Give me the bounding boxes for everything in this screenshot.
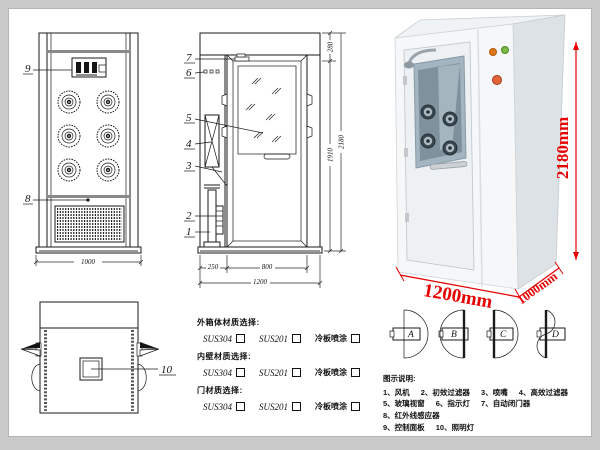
material-group-title: 外箱体材质选择: xyxy=(197,317,379,328)
svg-text:A: A xyxy=(407,330,414,340)
legend-title: 图示说明: xyxy=(383,373,591,385)
svg-text:1000: 1000 xyxy=(81,258,96,266)
front-view-drawing: 9 xyxy=(20,24,185,272)
legend-item: 2、初效过滤器 xyxy=(421,388,470,397)
material-option-label: SUS201 xyxy=(259,368,288,378)
material-option-label: SUS304 xyxy=(203,402,232,412)
front-top-band xyxy=(47,50,130,53)
svg-text:2180: 2180 xyxy=(338,135,346,150)
legend-row: 1、风机 2、初效过滤器 3、喷嘴 4、高效过滤器 xyxy=(383,387,591,399)
dim-vertical: 280 1910 2180 xyxy=(322,31,346,253)
legend-item: 10、照明灯 xyxy=(436,423,474,432)
legend: 图示说明: 1、风机 2、初效过滤器 3、喷嘴 4、高效过滤器 5、玻璃视窗 6… xyxy=(383,373,591,433)
svg-text:10: 10 xyxy=(161,364,173,376)
legend-item: 1、风机 xyxy=(383,388,410,397)
svg-text:5: 5 xyxy=(186,112,192,124)
door-option-b: B xyxy=(439,310,468,358)
door-hardware-left xyxy=(21,342,41,391)
door-option-d: D xyxy=(537,310,565,358)
side-right-wall xyxy=(307,55,320,247)
door-option-a: A xyxy=(390,310,428,358)
svg-text:C: C xyxy=(500,330,507,340)
air-grille xyxy=(55,206,124,242)
door-hardware-right xyxy=(137,342,159,391)
svg-text:8: 8 xyxy=(25,193,31,205)
material-option-label: SUS201 xyxy=(259,402,288,412)
material-checkbox[interactable] xyxy=(292,368,301,377)
svg-text:6: 6 xyxy=(186,67,192,79)
svg-text:D: D xyxy=(551,330,559,340)
svg-text:1200: 1200 xyxy=(253,278,268,286)
legend-row: 9、控制面板 10、照明灯 xyxy=(383,422,591,434)
material-checkbox[interactable] xyxy=(351,368,360,377)
legend-item: 9、控制面板 xyxy=(383,423,425,432)
front-mid-band xyxy=(47,195,130,198)
material-option-label: 冷板喷涂 xyxy=(315,401,347,412)
svg-text:B: B xyxy=(451,330,457,340)
legend-row: 5、玻璃视窗 6、指示灯 7、自动闭门器 8、红外线感应器 xyxy=(383,398,591,421)
top-view-drawing: 10 xyxy=(18,296,193,421)
product-photo: 2180mm 1200mm 1000mm xyxy=(380,8,592,308)
spec-sheet: 9 xyxy=(0,0,600,450)
material-option-row: SUS304 SUS201 冷板喷涂 xyxy=(203,367,379,378)
material-checkbox[interactable] xyxy=(236,402,245,411)
dim-front-width: 1000 xyxy=(34,255,143,266)
material-option-row: SUS304 SUS201 冷板喷涂 xyxy=(203,401,379,412)
control-panel xyxy=(72,58,106,77)
svg-text:250: 250 xyxy=(208,263,219,271)
material-checkbox[interactable] xyxy=(236,368,245,377)
door-option-c: C xyxy=(487,310,518,358)
material-option-label: SUS201 xyxy=(259,334,288,344)
svg-text:2: 2 xyxy=(186,210,192,222)
svg-text:4: 4 xyxy=(186,138,192,150)
side-view-drawing: 7 6 5 4 3 2 1 xyxy=(178,20,350,292)
material-checkbox[interactable] xyxy=(351,402,360,411)
svg-text:9: 9 xyxy=(25,63,31,75)
material-checkbox[interactable] xyxy=(292,334,301,343)
photo-dim-height: 2180mm xyxy=(553,117,572,179)
legend-item: 8、红外线感应器 xyxy=(383,411,440,420)
door-swing-options: A B C D xyxy=(388,306,580,368)
side-top-lintel xyxy=(200,33,320,55)
svg-text:800: 800 xyxy=(262,263,273,271)
material-option-row: SUS304 SUS201 冷板喷涂 xyxy=(203,333,379,344)
photo-door xyxy=(403,42,474,270)
legend-item: 7、自动闭门器 xyxy=(481,399,530,408)
material-checkbox[interactable] xyxy=(351,334,360,343)
legend-item: 3、喷嘴 xyxy=(481,388,508,397)
material-option-label: SUS304 xyxy=(203,334,232,344)
side-door xyxy=(227,54,307,247)
door-closer xyxy=(235,57,249,61)
material-group-title: 门材质选择: xyxy=(197,385,379,396)
material-checkbox[interactable] xyxy=(292,402,301,411)
svg-text:7: 7 xyxy=(186,52,192,64)
material-checkbox[interactable] xyxy=(236,334,245,343)
legend-item: 6、指示灯 xyxy=(436,399,470,408)
svg-text:280: 280 xyxy=(327,41,335,52)
material-selection: 外箱体材质选择: SUS304 SUS201 冷板喷涂 内壁材质选择: SUS3… xyxy=(197,317,379,419)
svg-text:3: 3 xyxy=(185,160,192,172)
svg-text:1: 1 xyxy=(186,226,192,238)
legend-item: 5、玻璃视窗 xyxy=(383,399,425,408)
material-option-label: 冷板喷涂 xyxy=(315,333,347,344)
svg-text:1910: 1910 xyxy=(327,148,335,163)
material-option-label: SUS304 xyxy=(203,368,232,378)
material-option-label: 冷板喷涂 xyxy=(315,367,347,378)
dim-horizontal: 250 800 1200 xyxy=(198,255,322,288)
legend-item: 4、高效过滤器 xyxy=(519,388,568,397)
material-group-title: 内壁材质选择: xyxy=(197,351,379,362)
